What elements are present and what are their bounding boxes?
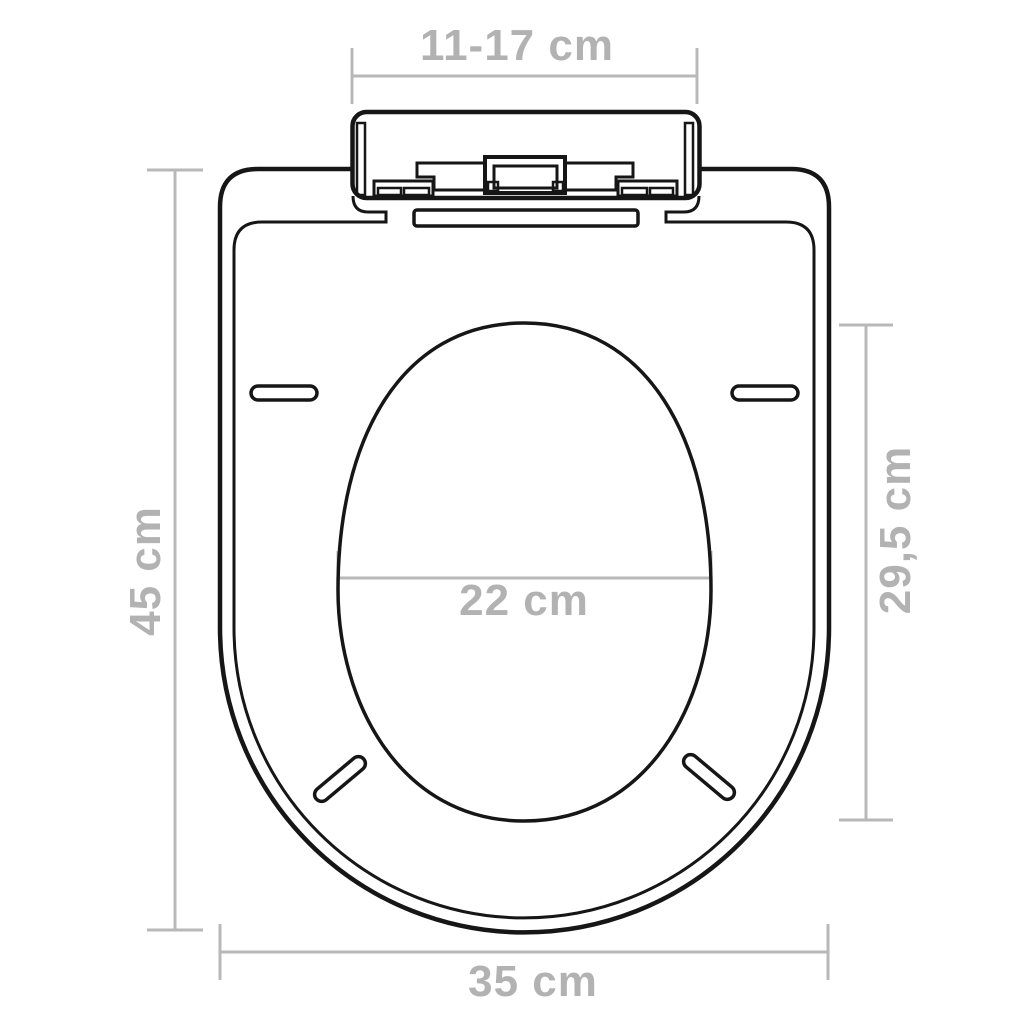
dimension-diagram: 11-17 cm 45 cm 29,5 cm 22 cm 35 cm	[0, 0, 1024, 1024]
dimension-label-hole-width: 22 cm	[459, 576, 589, 625]
dimension-label-inner-length: 29,5 cm	[871, 446, 920, 614]
toilet-seat-diagram: 11-17 cm 45 cm 29,5 cm 22 cm 35 cm	[0, 0, 1024, 1024]
dimension-label-hinge-span: 11-17 cm	[420, 21, 614, 70]
dimension-label-total-length: 45 cm	[121, 506, 170, 636]
dimension-label-total-width: 35 cm	[468, 957, 598, 1006]
